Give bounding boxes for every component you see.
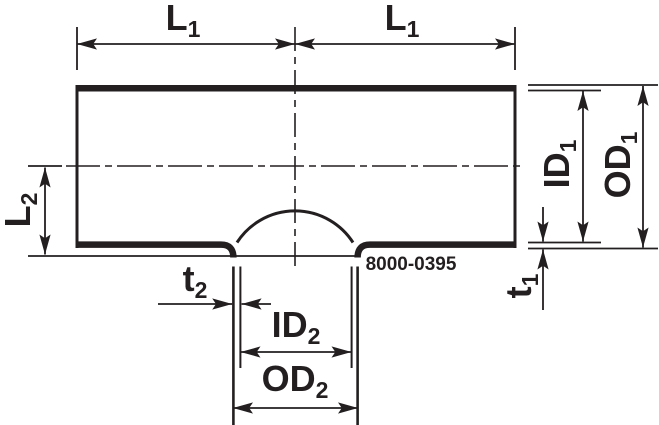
run-pipe-body <box>76 86 517 258</box>
dimension-lines <box>45 44 643 408</box>
label-id2: ID2 <box>272 304 321 349</box>
label-t2: t2 <box>183 258 208 303</box>
tee-fitting-dimension-drawing: L1 L1 L2 ID1 OD1 t1 t2 ID2 OD2 8000-0395 <box>0 0 659 425</box>
label-t1: t1 <box>498 273 543 298</box>
branch-pipe <box>233 267 357 425</box>
label-l1-left: L1 <box>166 0 201 42</box>
drawing-canvas: L1 L1 L2 ID1 OD1 t1 t2 ID2 OD2 8000-0395 <box>0 0 659 425</box>
label-l1-right: L1 <box>385 0 420 42</box>
label-id1: ID1 <box>536 139 581 188</box>
label-od1: OD1 <box>597 131 642 198</box>
label-od2: OD2 <box>262 358 329 403</box>
centerlines <box>66 27 524 268</box>
part-number: 8000-0395 <box>366 254 457 275</box>
dimension-labels: L1 L1 L2 ID1 OD1 t1 t2 ID2 OD2 8000-0395 <box>0 0 642 403</box>
label-l2: L2 <box>0 193 42 228</box>
